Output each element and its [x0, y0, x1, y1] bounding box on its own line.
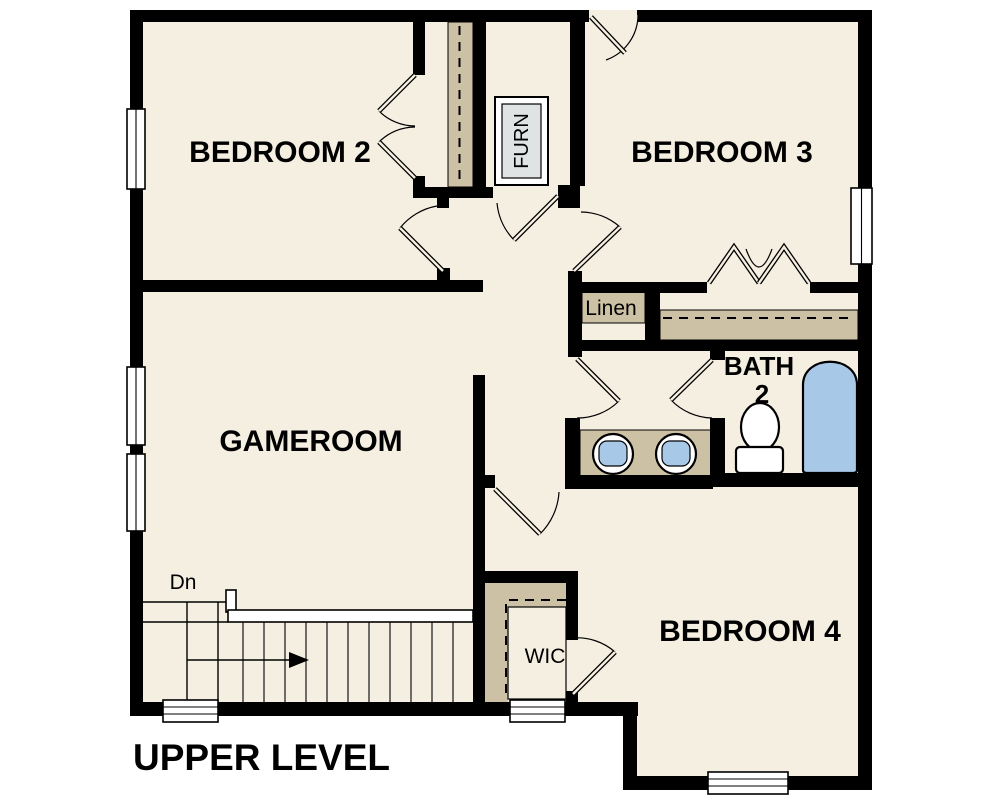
linen-label: Linen [585, 297, 636, 320]
wall [568, 340, 858, 351]
floor-plan: BEDROOM 2 BEDROOM 3 GAMEROOM BEDROOM 4 B… [0, 0, 1000, 800]
wall [810, 282, 858, 293]
window [708, 772, 788, 794]
page-title: UPPER LEVEL [133, 737, 390, 778]
wic-shelf-west [483, 583, 508, 703]
bedroom3-label: BEDROOM 3 [631, 136, 813, 169]
wic-label: WIC [525, 645, 566, 668]
wall [713, 473, 858, 487]
wall [858, 10, 872, 790]
vanity-sink [656, 434, 696, 474]
stair-handrail [228, 610, 473, 622]
window [127, 454, 145, 531]
wall [645, 293, 660, 341]
wall [710, 418, 725, 478]
bath2-label-line1: BATH [724, 351, 794, 381]
wall [710, 351, 725, 360]
window [510, 700, 565, 722]
wall [637, 10, 872, 22]
wall [568, 282, 707, 293]
wall [413, 22, 425, 75]
stair-newel [226, 590, 236, 612]
wall [473, 375, 485, 702]
wall [565, 475, 713, 489]
bedroom2-label: BEDROOM 2 [189, 136, 371, 169]
wall [130, 280, 483, 292]
stairs-down-label: Dn [170, 571, 197, 594]
wall [413, 187, 493, 198]
window [163, 700, 218, 722]
window [127, 109, 145, 189]
gameroom-label: GAMEROOM [219, 425, 402, 458]
wall [566, 583, 578, 640]
wall [473, 22, 486, 188]
wall [483, 571, 578, 583]
vanity-sink [593, 434, 633, 474]
wall [565, 418, 580, 480]
wall [485, 475, 495, 488]
window [127, 367, 145, 445]
floor-plan-drawing: BEDROOM 2 BEDROOM 3 GAMEROOM BEDROOM 4 B… [0, 0, 1000, 800]
bedroom4-label: BEDROOM 4 [659, 615, 841, 648]
bedroom3-closet-shelf [660, 310, 858, 340]
window [851, 188, 872, 264]
wall [570, 22, 585, 186]
toilet [736, 403, 783, 473]
wall [437, 198, 449, 208]
furnace-label: FURN [511, 113, 533, 169]
wall [558, 185, 580, 208]
wall [130, 10, 589, 22]
bathtub [803, 362, 857, 473]
bath2-label-line2: 2 [755, 379, 769, 409]
